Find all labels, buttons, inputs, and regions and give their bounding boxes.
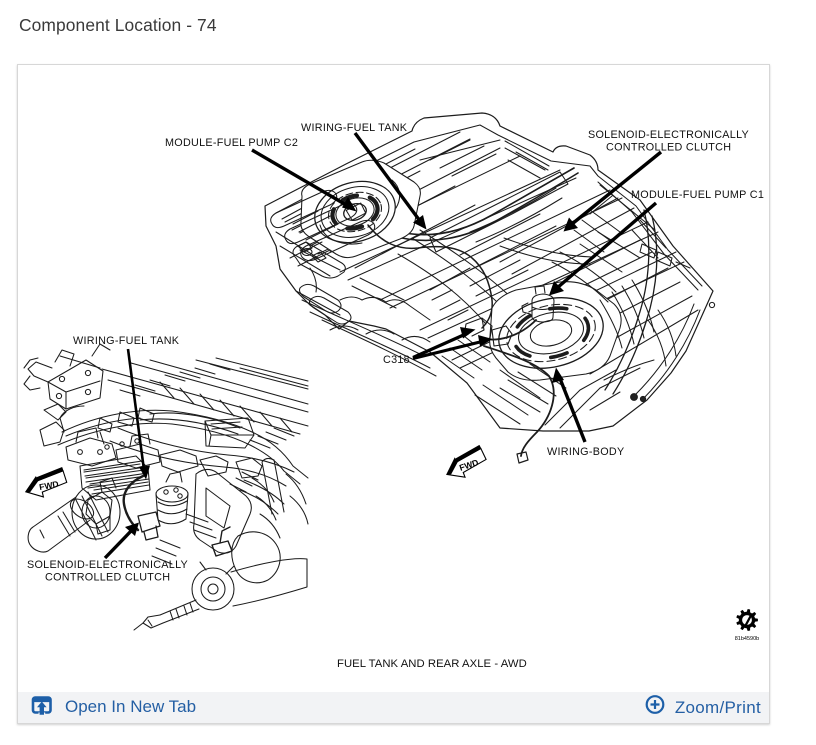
svg-text:CONTROLLED CLUTCH: CONTROLLED CLUTCH [606, 142, 731, 154]
svg-text:CONTROLLED CLUTCH: CONTROLLED CLUTCH [45, 572, 170, 584]
svg-text:81b4590b: 81b4590b [735, 636, 759, 642]
svg-text:FWD: FWD [38, 479, 59, 492]
svg-text:C318: C318 [383, 354, 410, 366]
svg-text:MODULE-FUEL PUMP C1: MODULE-FUEL PUMP C1 [631, 189, 764, 201]
svg-text:MODULE-FUEL PUMP C2: MODULE-FUEL PUMP C2 [165, 137, 298, 149]
svg-text:SOLENOID-ELECTRONICALLY: SOLENOID-ELECTRONICALLY [27, 559, 188, 571]
svg-text:SOLENOID-ELECTRONICALLY: SOLENOID-ELECTRONICALLY [588, 129, 749, 141]
svg-text:WIRING-BODY: WIRING-BODY [547, 446, 624, 458]
svg-text:FUEL TANK AND REAR AXLE - AWD: FUEL TANK AND REAR AXLE - AWD [337, 658, 527, 670]
svg-text:WIRING-FUEL TANK: WIRING-FUEL TANK [301, 122, 408, 134]
svg-text:WIRING-FUEL TANK: WIRING-FUEL TANK [73, 335, 180, 347]
